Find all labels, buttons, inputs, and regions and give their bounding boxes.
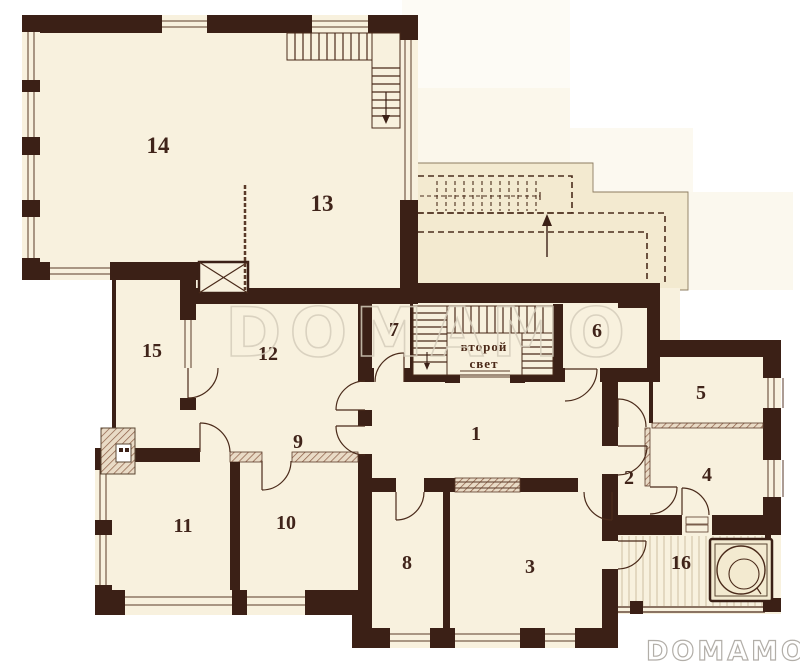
room-label-2: 2: [624, 467, 634, 489]
room-label-5: 5: [696, 382, 706, 404]
floor-plan-drawing: 14 13 15 12 7 6 5 1 9 2 4 11 10 8 3 16 в…: [0, 0, 800, 665]
floor-plan-page: 14 13 15 12 7 6 5 1 9 2 4 11 10 8 3 16 в…: [0, 0, 800, 665]
room-label-1: 1: [471, 423, 481, 445]
room-label-13: 13: [311, 191, 334, 216]
bottom-logo: DOMAMO: [646, 636, 800, 665]
room-label-14: 14: [147, 133, 171, 158]
room-label-11: 11: [174, 515, 193, 537]
center-watermark: DOMAMO: [225, 294, 633, 373]
room-label-3: 3: [525, 556, 535, 578]
duct-shaft: [199, 262, 248, 293]
hot-tub: [710, 539, 772, 601]
room-label-10: 10: [276, 512, 296, 534]
fireplace-boiler: [101, 428, 135, 474]
room-label-16: 16: [671, 552, 691, 574]
room-label-8: 8: [402, 552, 412, 574]
room-label-15: 15: [142, 340, 162, 362]
room-label-4: 4: [702, 464, 712, 486]
room-label-9: 9: [293, 431, 303, 453]
